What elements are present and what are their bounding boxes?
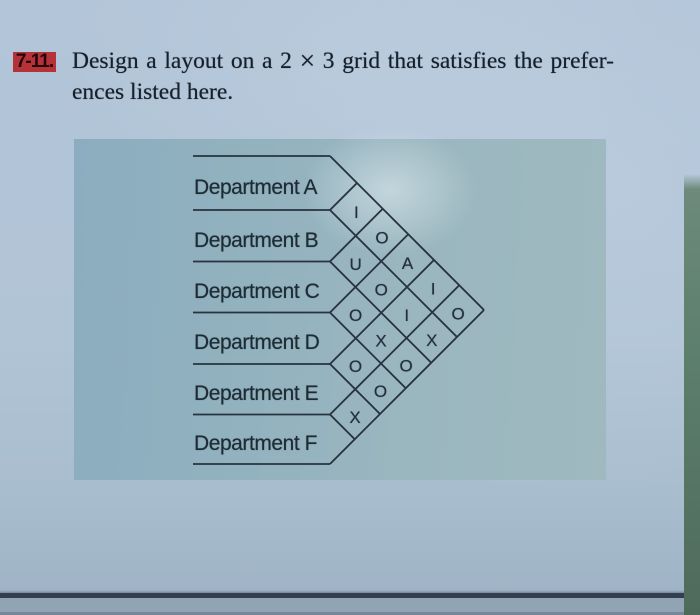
svg-text:I: I <box>431 280 436 299</box>
svg-text:I: I <box>404 306 409 325</box>
svg-text:O: O <box>375 281 388 300</box>
svg-text:O: O <box>399 357 412 376</box>
svg-text:Department B: Department B <box>194 229 318 252</box>
svg-text:Department F: Department F <box>194 432 317 455</box>
svg-text:O: O <box>374 382 387 401</box>
svg-text:X: X <box>349 408 360 427</box>
svg-text:Department E: Department E <box>194 382 319 405</box>
svg-text:Department C: Department C <box>194 280 320 303</box>
svg-text:O: O <box>451 305 464 324</box>
svg-text:O: O <box>349 357 362 376</box>
svg-text:O: O <box>349 306 362 325</box>
svg-text:U: U <box>349 255 361 274</box>
svg-text:X: X <box>375 332 386 351</box>
svg-text:A: A <box>402 254 414 273</box>
svg-text:Department A: Department A <box>194 176 317 199</box>
svg-text:Department D: Department D <box>194 331 320 354</box>
svg-text:I: I <box>354 203 359 222</box>
svg-text:O: O <box>375 229 388 248</box>
svg-text:X: X <box>426 331 437 350</box>
